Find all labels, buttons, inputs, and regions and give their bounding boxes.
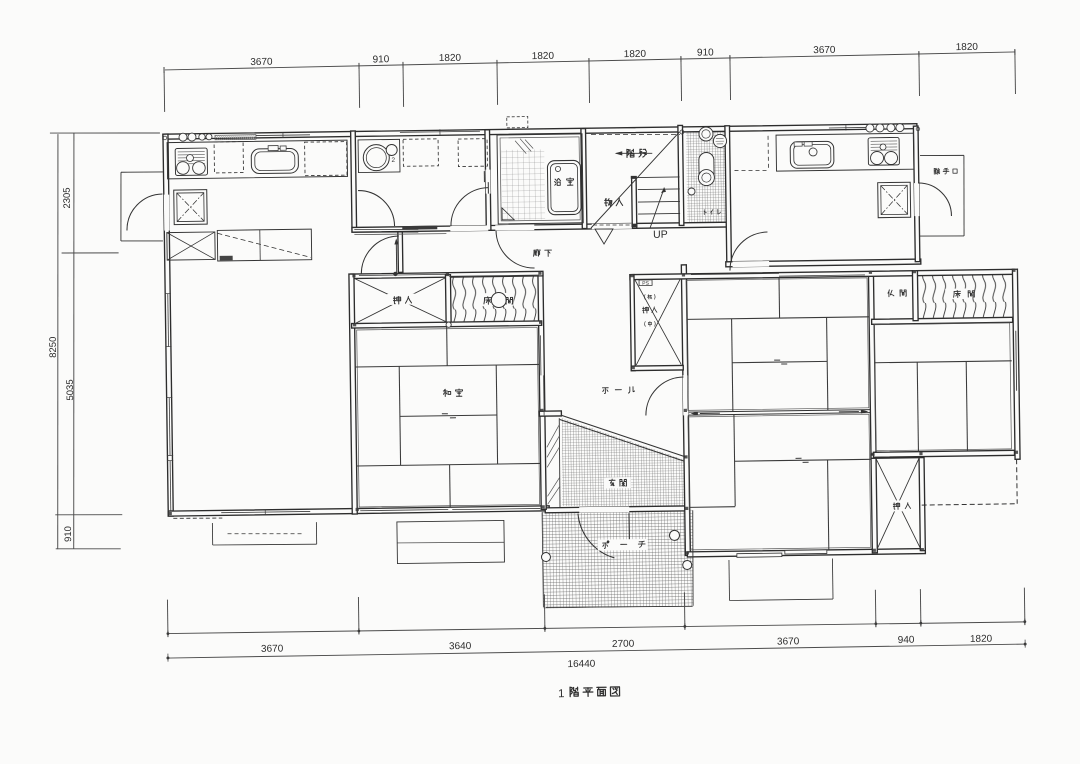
svg-text:1820: 1820 <box>624 49 647 60</box>
svg-text:UP: UP <box>653 229 668 241</box>
svg-text:16440: 16440 <box>567 659 595 670</box>
svg-text:1820: 1820 <box>439 53 462 64</box>
svg-text:940: 940 <box>898 635 915 646</box>
svg-text:8250: 8250 <box>48 337 59 358</box>
svg-text:2700: 2700 <box>612 639 635 650</box>
svg-text:910: 910 <box>697 47 714 58</box>
svg-text:1: 1 <box>558 688 565 700</box>
svg-text:910: 910 <box>373 54 390 65</box>
svg-text:5035: 5035 <box>65 379 76 400</box>
svg-text:PS: PS <box>642 281 649 287</box>
svg-text:3670: 3670 <box>813 45 836 56</box>
svg-text:1820: 1820 <box>970 634 993 645</box>
svg-text:910: 910 <box>63 526 74 542</box>
svg-text:3670: 3670 <box>250 57 273 68</box>
svg-text:2305: 2305 <box>62 187 73 208</box>
svg-text:1820: 1820 <box>532 51 555 62</box>
svg-text:1820: 1820 <box>956 42 979 53</box>
svg-text:3670: 3670 <box>777 636 800 647</box>
svg-text:2: 2 <box>391 157 395 164</box>
svg-text:3640: 3640 <box>449 641 472 652</box>
svg-text:3670: 3670 <box>261 644 284 655</box>
